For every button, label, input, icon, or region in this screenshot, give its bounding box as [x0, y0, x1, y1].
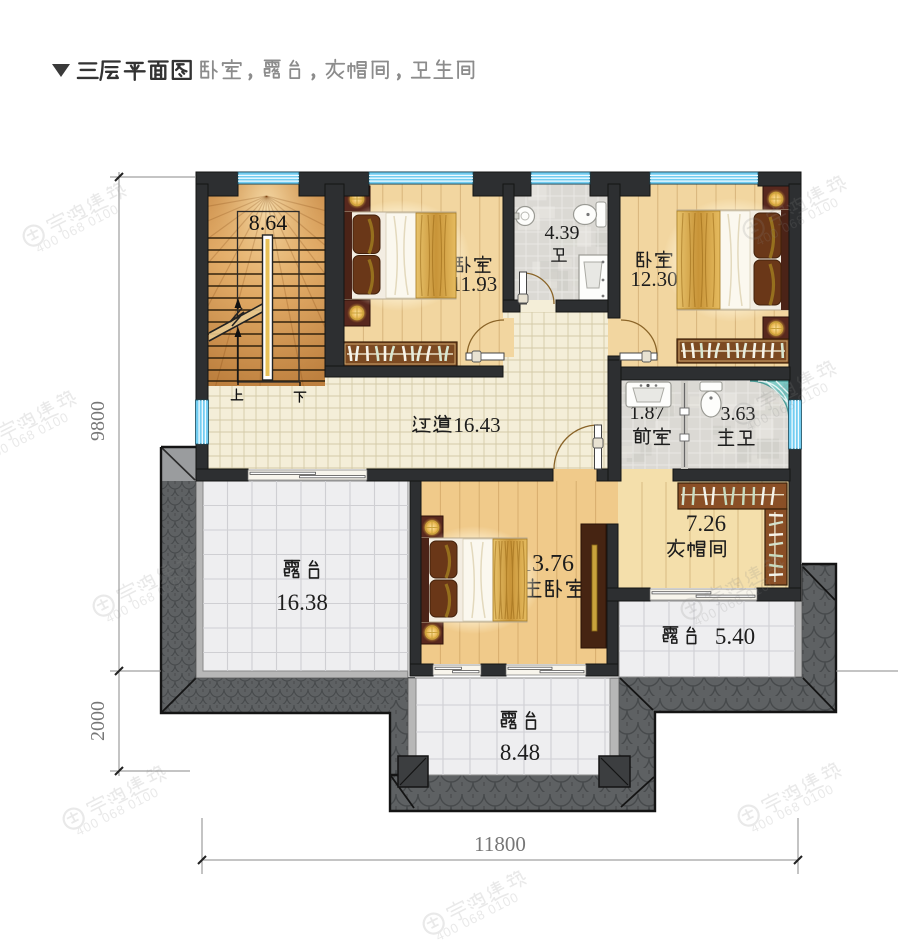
svg-text:400 068 0100: 400 068 0100 — [73, 784, 161, 839]
svg-text:400 068 0100: 400 068 0100 — [33, 201, 121, 256]
svg-text:8.48: 8.48 — [500, 740, 540, 765]
svg-text:8.64: 8.64 — [249, 210, 288, 235]
svg-text:400 068 0100: 400 068 0100 — [0, 409, 71, 464]
svg-text:9800: 9800 — [87, 401, 109, 441]
svg-text:2000: 2000 — [87, 701, 109, 741]
svg-text:16.38: 16.38 — [276, 590, 328, 615]
svg-text:16.43: 16.43 — [453, 413, 500, 437]
svg-text:400 068 0100: 400 068 0100 — [748, 781, 836, 836]
svg-text:7.26: 7.26 — [686, 511, 726, 536]
svg-text:400 068 0100: 400 068 0100 — [433, 889, 521, 944]
svg-text:4.39: 4.39 — [545, 222, 580, 244]
svg-text:5.40: 5.40 — [715, 624, 755, 649]
svg-text:11800: 11800 — [474, 832, 526, 856]
